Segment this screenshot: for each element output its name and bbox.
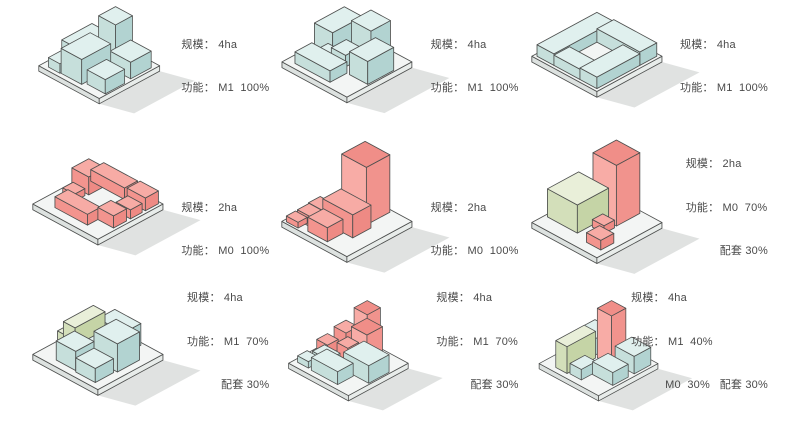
iso-diagram-4 [30,130,203,284]
iso-diagram-1 [30,4,203,116]
scale-line: 规模： 2ha [181,201,269,216]
scheme-cell-3: 规模： 4ha 功能： M1 100% [525,2,774,128]
function-line: 功能： M1 40% [631,335,768,350]
scheme-label-2: 规模： 4ha 功能： M1 100% [431,9,519,125]
iso-diagram-5 [279,130,452,284]
scheme-cell-9: 规模： 4ha 功能： M1 40% M0 30% 配套 30% [525,296,774,423]
function-line: 功能： M1 100% [431,81,519,96]
scheme-label-3: 规模： 4ha 功能： M1 100% [680,9,768,125]
function-line: 功能： M0 100% [431,244,519,259]
function-line: 功能： M1 100% [680,81,768,96]
massing-study-figure: 规模： 4ha 功能： M1 100% 规模： 4ha 功能： M1 100% … [0,0,800,423]
scheme-grid: 规模： 4ha 功能： M1 100% 规模： 4ha 功能： M1 100% … [0,0,800,423]
scale-line: 规模： 4ha [436,291,518,306]
iso-diagram-7 [30,298,203,413]
scheme-cell-1: 规模： 4ha 功能： M1 100% [26,2,275,128]
scale-line: 规模： 4ha [431,38,519,53]
function-line: 功能： M1 70% [436,335,518,350]
iso-diagram-3 [529,4,702,116]
scale-line: 规模： 4ha [181,38,269,53]
scheme-cell-7: 规模： 4ha 功能： M1 70% 配套 30% [26,296,275,423]
scheme-label-1: 规模： 4ha 功能： M1 100% [181,9,269,125]
scheme-label-9: 规模： 4ha 功能： M1 40% M0 30% 配套 30% [631,262,768,422]
support-line: 配套 30% [436,378,518,393]
scheme-label-8: 规模： 4ha 功能： M1 70% 配套 30% [436,262,518,422]
scale-line: 规模： 2ha [431,201,519,216]
scale-line: 规模： 4ha [680,38,768,53]
iso-diagram-2 [279,4,452,116]
scale-line: 规模： 4ha [187,291,269,306]
scale-line: 规模： 2ha [686,157,768,172]
scheme-cell-2: 规模： 4ha 功能： M1 100% [275,2,524,128]
scale-line: 规模： 4ha [631,291,768,306]
support-line: 配套 30% [686,244,768,259]
function-line: 功能： M0 100% [181,244,269,259]
iso-diagram-8 [279,298,452,413]
iso-diagram-6 [529,130,702,284]
function-line: 功能： M0 70% [686,201,768,216]
scheme-label-7: 规模： 4ha 功能： M1 70% 配套 30% [187,262,269,422]
support-line: M0 30% 配套 30% [631,378,768,393]
scheme-cell-8: 规模： 4ha 功能： M1 70% 配套 30% [275,296,524,423]
function-line: 功能： M1 70% [187,335,269,350]
function-line: 功能： M1 100% [181,81,269,96]
support-line: 配套 30% [187,378,269,393]
